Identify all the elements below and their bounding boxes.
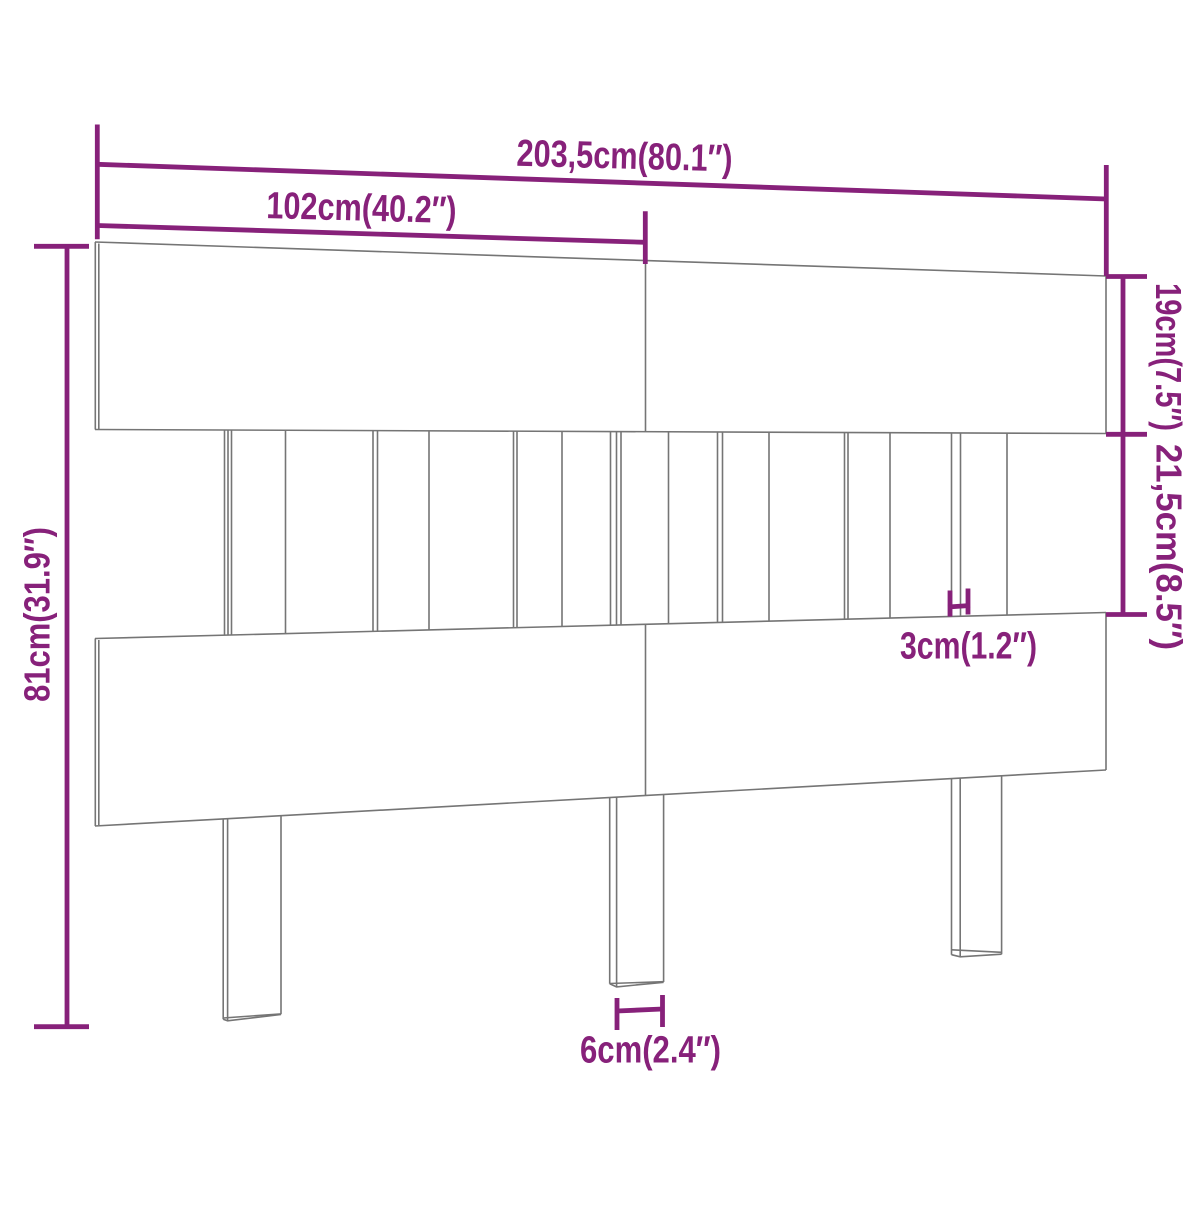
svg-text:19cm(7.5″): 19cm(7.5″) [1148,283,1189,431]
svg-text:21,5cm(8.5″): 21,5cm(8.5″) [1148,444,1189,650]
svg-text:6cm(2.4″): 6cm(2.4″) [580,1030,721,1072]
svg-text:102cm(40.2″): 102cm(40.2″) [266,185,457,232]
svg-text:203,5cm(80.1″): 203,5cm(80.1″) [516,133,733,180]
svg-text:3cm(1.2″): 3cm(1.2″) [900,625,1037,667]
svg-text:81cm(31.9″): 81cm(31.9″) [18,527,58,702]
